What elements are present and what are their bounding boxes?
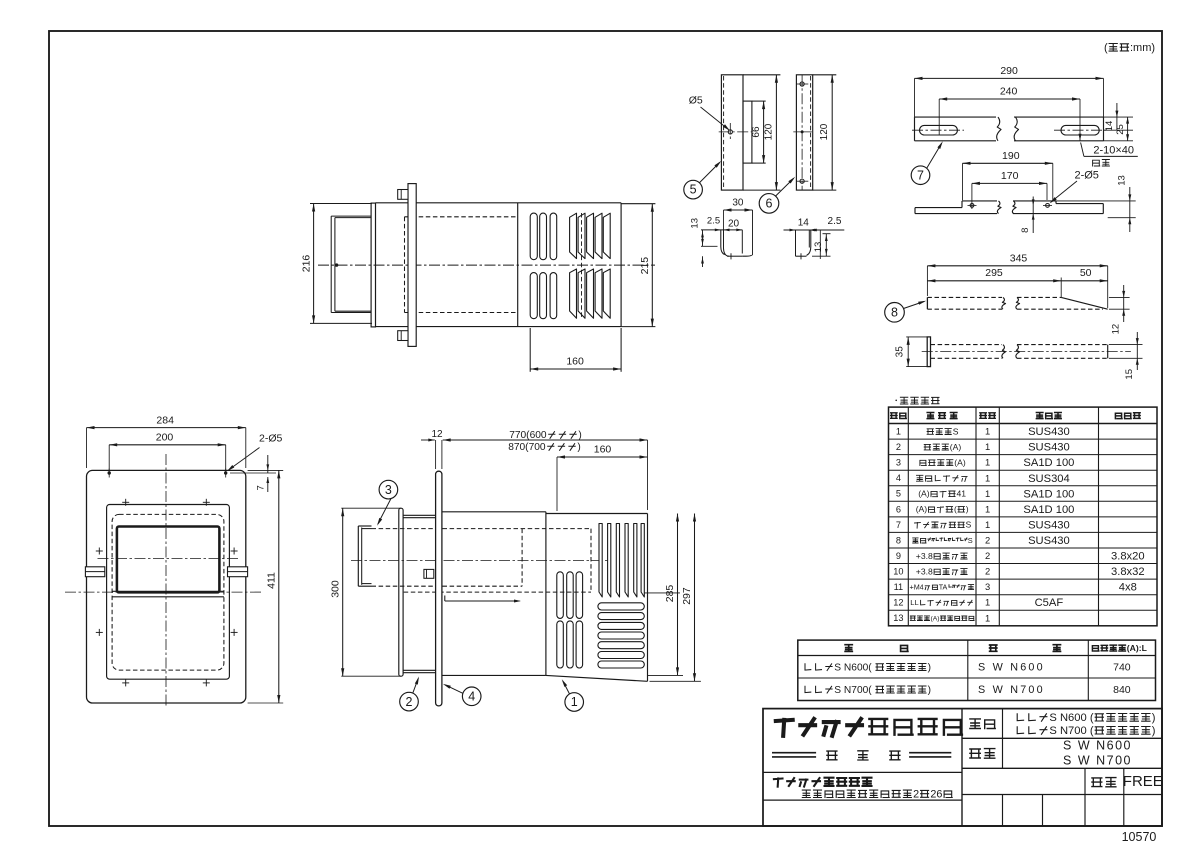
svg-text:2.5: 2.5 <box>707 215 720 226</box>
svg-text:(: ( <box>1104 42 1108 54</box>
svg-text:170: 170 <box>1001 170 1019 182</box>
svg-text:120: 120 <box>819 123 830 140</box>
svg-text:1: 1 <box>985 441 990 452</box>
svg-text::mm): :mm) <box>1130 42 1155 54</box>
svg-text:870(700: 870(700 <box>508 442 546 453</box>
svg-text:1: 1 <box>985 519 990 530</box>
svg-text:13: 13 <box>690 218 701 229</box>
svg-text:(A): (A) <box>916 504 928 514</box>
svg-text:7: 7 <box>896 520 901 530</box>
svg-text:1: 1 <box>985 503 990 514</box>
svg-text:+3.8: +3.8 <box>916 566 933 576</box>
svg-text:SA1D 100: SA1D 100 <box>1023 504 1074 516</box>
svg-text:S: S <box>968 536 973 545</box>
svg-text:6: 6 <box>766 197 773 211</box>
svg-text:14: 14 <box>798 217 810 228</box>
svg-text:Ø5: Ø5 <box>689 95 703 107</box>
svg-text:S N600(: S N600( <box>834 662 872 673</box>
svg-text:7: 7 <box>255 485 266 490</box>
svg-text:10570: 10570 <box>1122 830 1157 844</box>
svg-text:284: 284 <box>156 414 174 426</box>
svg-text:3.8x20: 3.8x20 <box>1111 551 1145 563</box>
svg-text:): ) <box>928 685 931 696</box>
svg-text:): ) <box>966 504 969 514</box>
svg-text:(A): (A) <box>918 489 930 499</box>
svg-text:2.5: 2.5 <box>828 216 842 227</box>
svg-text:S W N600: S W N600 <box>978 661 1045 673</box>
svg-text:2-Ø5: 2-Ø5 <box>1074 170 1098 182</box>
svg-text:(A): (A) <box>950 442 962 452</box>
svg-text:2: 2 <box>896 442 901 452</box>
svg-text:C5AF: C5AF <box>1035 597 1064 609</box>
svg-text:S W N700: S W N700 <box>978 684 1045 696</box>
svg-text:4x8: 4x8 <box>1119 582 1137 594</box>
svg-text:215: 215 <box>639 257 651 275</box>
svg-text:190: 190 <box>1002 150 1020 162</box>
svg-text:8: 8 <box>896 535 901 545</box>
svg-text:13: 13 <box>1117 175 1128 186</box>
svg-text:41: 41 <box>957 489 967 499</box>
svg-text:2: 2 <box>406 695 413 709</box>
svg-text:S N700 (: S N700 ( <box>1049 725 1093 737</box>
svg-text:840: 840 <box>1113 684 1131 696</box>
svg-text:25: 25 <box>1115 124 1126 135</box>
svg-text:5: 5 <box>690 183 697 197</box>
svg-text:): ) <box>1152 725 1156 737</box>
svg-text:6: 6 <box>896 504 901 514</box>
svg-text:SA1D 100: SA1D 100 <box>1023 457 1074 469</box>
svg-text:11: 11 <box>894 582 904 592</box>
svg-text:2: 2 <box>985 566 990 577</box>
svg-text:1: 1 <box>985 457 990 468</box>
svg-text:3.8x32: 3.8x32 <box>1111 566 1145 578</box>
svg-text:(A):L: (A):L <box>1127 643 1147 653</box>
svg-text:35: 35 <box>894 346 905 358</box>
svg-text:297: 297 <box>681 587 693 605</box>
svg-text:3: 3 <box>985 581 990 592</box>
svg-text:216: 216 <box>301 255 313 273</box>
svg-text:7: 7 <box>917 168 924 182</box>
svg-text:411: 411 <box>266 572 278 589</box>
svg-text:12: 12 <box>431 429 443 440</box>
svg-text:): ) <box>1152 712 1156 724</box>
svg-text:300: 300 <box>330 580 342 598</box>
svg-text:26: 26 <box>930 788 942 800</box>
svg-text:30: 30 <box>732 197 744 208</box>
svg-text:TA: TA <box>939 583 948 592</box>
svg-text:740: 740 <box>1113 661 1131 673</box>
svg-text:8: 8 <box>891 306 898 320</box>
svg-text:2: 2 <box>913 788 919 800</box>
svg-text:1: 1 <box>985 472 990 483</box>
svg-text:S: S <box>966 520 972 530</box>
svg-text:LL: LL <box>910 598 918 607</box>
svg-text:S: S <box>953 426 959 436</box>
svg-text:120: 120 <box>763 123 774 140</box>
svg-text:S N700(: S N700( <box>834 685 872 696</box>
svg-text:2: 2 <box>985 535 990 546</box>
svg-text:1: 1 <box>896 427 901 437</box>
svg-text:S W N700: S W N700 <box>1063 753 1132 767</box>
svg-text:1: 1 <box>985 488 990 499</box>
svg-text:SA1D 100: SA1D 100 <box>1023 488 1074 500</box>
svg-text:12: 12 <box>893 598 903 608</box>
svg-text:(A): (A) <box>931 615 940 622</box>
svg-text:2-Ø5: 2-Ø5 <box>259 433 283 445</box>
svg-text:(A): (A) <box>954 458 966 468</box>
svg-text:): ) <box>577 442 580 453</box>
svg-text:3: 3 <box>896 458 901 468</box>
svg-text:240: 240 <box>1000 86 1018 98</box>
svg-text:3: 3 <box>385 483 392 497</box>
svg-text:4: 4 <box>896 473 901 483</box>
svg-text:14: 14 <box>1104 121 1115 132</box>
svg-text:1: 1 <box>985 426 990 437</box>
svg-text:12: 12 <box>1111 324 1122 335</box>
svg-text:295: 295 <box>985 267 1003 279</box>
svg-text:SUS430: SUS430 <box>1028 426 1070 438</box>
svg-text:20: 20 <box>728 218 740 229</box>
svg-text:160: 160 <box>594 444 612 456</box>
svg-text:1: 1 <box>985 597 990 608</box>
svg-text:9: 9 <box>896 551 901 561</box>
svg-text:50: 50 <box>1080 267 1092 279</box>
svg-text:8: 8 <box>1020 228 1031 233</box>
svg-text:345: 345 <box>1010 252 1028 264</box>
svg-text:4: 4 <box>468 690 475 704</box>
svg-text:66: 66 <box>751 126 762 138</box>
svg-text:): ) <box>928 662 931 673</box>
svg-text:SUS430: SUS430 <box>1028 519 1070 531</box>
svg-text:285: 285 <box>664 585 676 603</box>
svg-text:5: 5 <box>896 489 901 499</box>
svg-text:200: 200 <box>156 432 174 444</box>
svg-text:13: 13 <box>893 613 903 623</box>
svg-text:SUS430: SUS430 <box>1028 535 1070 547</box>
svg-text:S W N600: S W N600 <box>1063 739 1132 753</box>
svg-text:+M4: +M4 <box>910 583 924 592</box>
svg-text:(: ( <box>954 504 957 514</box>
svg-text:2: 2 <box>985 550 990 561</box>
svg-text:1: 1 <box>571 695 578 709</box>
svg-text:SUS304: SUS304 <box>1028 473 1070 485</box>
svg-text:): ) <box>578 430 581 441</box>
svg-text:770(600: 770(600 <box>509 430 547 441</box>
svg-text:160: 160 <box>566 356 584 368</box>
svg-text:290: 290 <box>1000 65 1018 77</box>
svg-text:FREE: FREE <box>1123 773 1163 790</box>
svg-text:15: 15 <box>1124 369 1135 380</box>
svg-text:13: 13 <box>813 242 824 253</box>
svg-text:2-10×40: 2-10×40 <box>1093 145 1134 157</box>
svg-text:S N600 (: S N600 ( <box>1049 712 1093 724</box>
svg-text:SUS430: SUS430 <box>1028 442 1070 454</box>
svg-text:1: 1 <box>985 612 990 623</box>
svg-text:+3.8: +3.8 <box>916 551 933 561</box>
svg-text:10: 10 <box>893 567 903 577</box>
